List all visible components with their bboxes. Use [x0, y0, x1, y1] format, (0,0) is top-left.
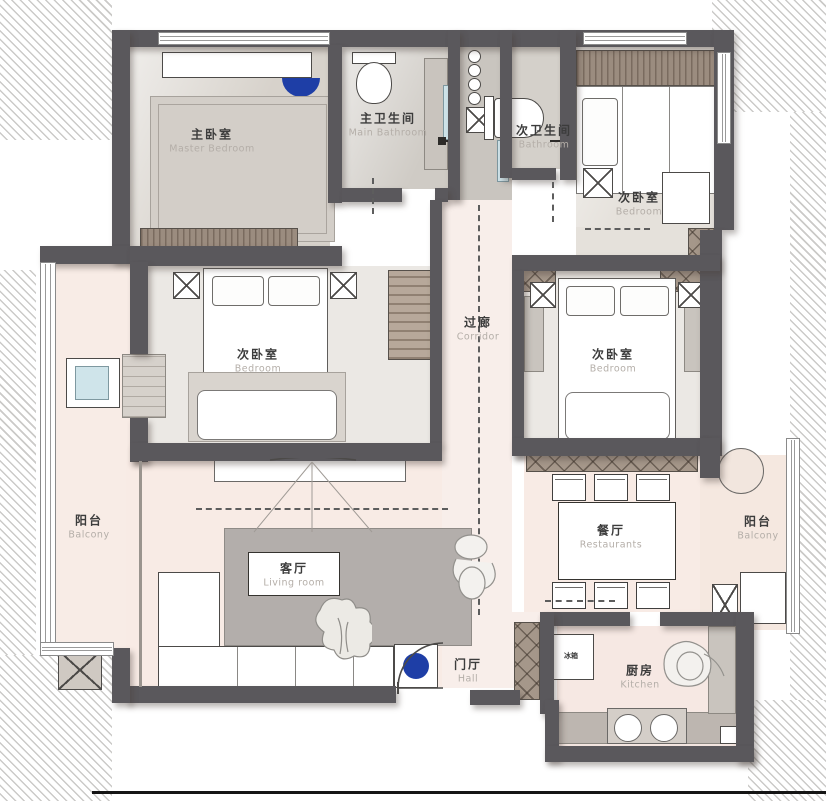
glazing-balcony-right — [786, 438, 800, 634]
person-sketch-corridor — [438, 525, 508, 610]
shaft-pipe-1 — [468, 50, 481, 63]
guide-bedroom-tr — [585, 228, 650, 230]
glazing-balcony-left-south — [40, 642, 114, 656]
pillow — [620, 286, 669, 316]
bedroom-tr-pillow — [582, 98, 618, 166]
wall-master-south — [130, 246, 342, 266]
glass-living-balcony — [139, 461, 142, 687]
hatch-bottom-right — [748, 700, 826, 801]
bed-line — [622, 87, 623, 193]
shaft-pipe-2 — [468, 64, 481, 77]
laundry-cabinet — [122, 354, 166, 418]
wall-shaft-right — [500, 30, 512, 178]
bedroom-left-bench — [197, 390, 337, 440]
wall-secbath-south — [512, 168, 556, 180]
dining-chair — [636, 474, 670, 501]
master-rug-inner — [158, 104, 327, 234]
bedroom-tr-headboard — [576, 50, 716, 86]
wall-balcony-right-stub — [700, 438, 720, 478]
window-master — [158, 32, 330, 45]
hatch-top-left — [0, 0, 112, 140]
wall-kitchen-north-b — [660, 612, 740, 626]
master-rug — [150, 96, 335, 242]
balcony-right-pot — [718, 448, 764, 494]
shaft-pipe-4 — [468, 92, 481, 105]
pillow — [268, 276, 320, 306]
wall-left-upper — [112, 30, 130, 262]
room-label-master-bedroom: 主卧室 Master Bedroom — [169, 126, 254, 155]
guide-dining-horizontal — [545, 600, 615, 602]
toilet-main — [356, 62, 392, 104]
dining-chair — [552, 582, 586, 609]
wall-living-south — [126, 686, 396, 703]
floor-plan: 主卧室 Master Bedroom 主卫生间 Main Bathroom 次卫… — [0, 0, 826, 801]
fridge-label: 冰箱 — [564, 651, 578, 661]
bottom-rule — [92, 791, 826, 794]
dining-chair — [636, 582, 670, 609]
wall-bedroom-left-west-a — [130, 262, 148, 354]
washing-machine-door — [75, 366, 109, 400]
bedroom-left-nightstand-1 — [173, 272, 200, 299]
room-label-balcony-right: 阳台 Balcony — [737, 513, 778, 542]
wall-bottom-left — [112, 648, 130, 703]
guide-mainbath — [372, 178, 374, 214]
room-label-corridor: 过廊 Corridor — [457, 314, 499, 343]
room-label-second-bathroom: 次卫生间 Bathroom — [516, 122, 572, 151]
tv-projection-sketch — [240, 458, 430, 538]
pillow — [566, 286, 615, 316]
hall-shoe-cabinet — [514, 622, 540, 700]
wall-corridor-left — [430, 200, 442, 445]
room-label-bedroom-top-right: 次卧室 Bedroom — [616, 189, 662, 218]
kitchen-sink-bowl-2 — [650, 714, 678, 742]
room-label-bedroom-right: 次卧室 Bedroom — [590, 346, 636, 375]
window-bedroom-tr — [583, 32, 687, 45]
guide-secbath — [552, 182, 554, 222]
room-label-living: 客厅 Living room — [263, 560, 324, 589]
toilet-tank-second — [484, 96, 494, 140]
plant-sketch — [312, 592, 372, 676]
hatch-left-strip — [0, 270, 36, 655]
pillow — [212, 276, 264, 306]
wall-entry-stub — [470, 690, 520, 705]
window-right-upper — [717, 52, 731, 144]
bedroom-tr-cabinet — [662, 172, 710, 224]
dining-chair — [594, 474, 628, 501]
bedroom-right-bench — [565, 392, 670, 440]
entry-door-arc — [390, 636, 452, 696]
person-sketch-kitchen — [652, 634, 730, 706]
wall-hall-right — [540, 612, 554, 714]
dining-chair — [594, 582, 628, 609]
wall-bedroom-right-north — [512, 255, 720, 271]
master-dresser — [162, 52, 312, 78]
bedroom-left-nightstand-2 — [330, 272, 357, 299]
wall-corridor-right — [512, 271, 524, 456]
bedroom-right-nightstand-1 — [530, 282, 556, 308]
wall-bedroom-right-south — [512, 438, 708, 456]
room-label-bedroom-left: 次卧室 Bedroom — [235, 346, 281, 375]
room-label-dining: 餐厅 Restaurants — [580, 522, 642, 551]
room-label-hall: 门厅 Hall — [454, 656, 482, 685]
kitchen-sink-bowl-1 — [614, 714, 642, 742]
valve-left — [438, 137, 446, 145]
glazing-balcony-left — [40, 262, 56, 644]
bedroom-tr-side-table — [583, 168, 613, 198]
dining-chair — [552, 474, 586, 501]
washing-machine — [66, 358, 120, 408]
shaft-pipe-3 — [468, 78, 481, 91]
room-label-kitchen: 厨房 Kitchen — [620, 662, 659, 691]
wall-kitchen-south — [545, 746, 754, 762]
floor-balcony-left — [56, 264, 130, 654]
room-label-balcony-left: 阳台 Balcony — [68, 512, 109, 541]
balcony-left-cabinet — [58, 650, 102, 690]
wall-secbath-bedroom — [560, 30, 576, 180]
wall-shaft-left — [448, 30, 460, 200]
wall-master-bath-divider — [328, 45, 342, 203]
room-label-main-bathroom: 主卫生间 Main Bathroom — [349, 110, 428, 139]
hatch-right-strip — [790, 112, 826, 760]
wall-kitchen-right — [736, 612, 754, 762]
